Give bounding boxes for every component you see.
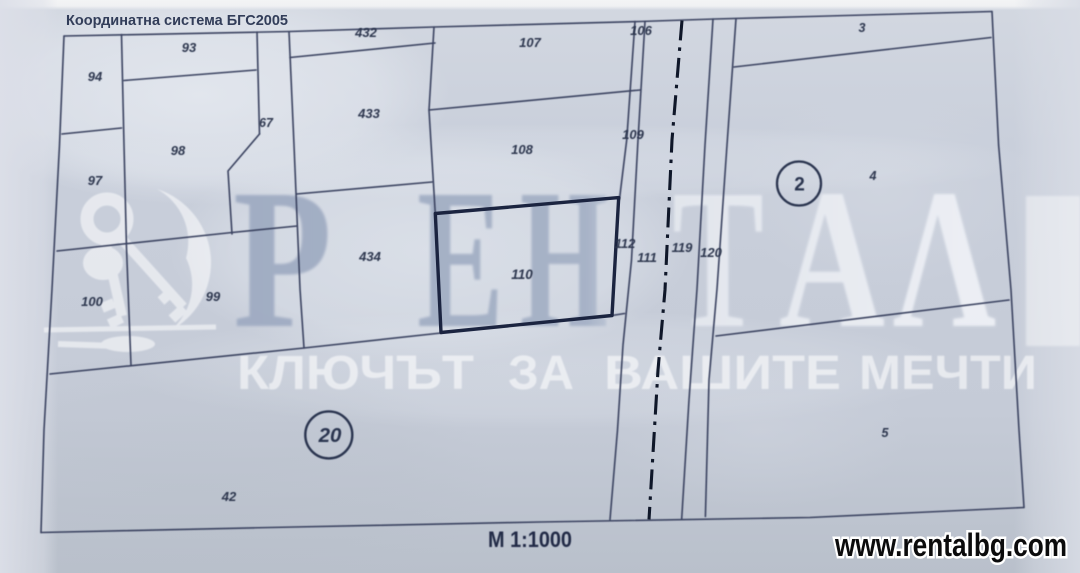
svg-text:106: 106 <box>630 23 652 38</box>
svg-text:5: 5 <box>882 426 890 440</box>
svg-text:М 1:1000: М 1:1000 <box>488 527 572 552</box>
svg-text:94: 94 <box>88 69 103 84</box>
svg-text:Н: Н <box>520 149 608 370</box>
svg-text:109: 109 <box>622 127 644 142</box>
svg-text:Р: Р <box>233 149 332 370</box>
svg-text:119: 119 <box>672 240 693 255</box>
svg-text:Координатна система БГС2005: Координатна система БГС2005 <box>66 12 288 29</box>
svg-text:110: 110 <box>511 267 533 282</box>
svg-text:МЕЧТИ: МЕЧТИ <box>859 347 1037 400</box>
svg-text:97: 97 <box>88 173 103 188</box>
svg-text:111: 111 <box>637 250 657 265</box>
svg-text:107: 107 <box>519 35 541 50</box>
svg-text:67: 67 <box>259 116 274 130</box>
svg-text:20: 20 <box>318 424 342 447</box>
svg-text:Λ: Λ <box>893 149 996 370</box>
svg-text:4: 4 <box>869 169 877 183</box>
svg-text:93: 93 <box>182 40 197 55</box>
svg-text:120: 120 <box>700 245 722 260</box>
svg-text:434: 434 <box>358 249 381 264</box>
svg-text:3: 3 <box>859 21 866 35</box>
svg-text:2: 2 <box>794 175 805 196</box>
svg-text:ВАШИТЕ: ВАШИТЕ <box>604 347 841 400</box>
svg-text:98: 98 <box>171 143 186 158</box>
svg-text:www.rentalbg.com: www.rentalbg.com <box>834 527 1067 563</box>
svg-text:433: 433 <box>357 106 380 121</box>
svg-text:112: 112 <box>615 236 636 251</box>
svg-text:108: 108 <box>511 142 533 157</box>
svg-text:КЛЮЧЪТ: КЛЮЧЪТ <box>237 347 474 400</box>
svg-text:ЗА: ЗА <box>508 347 574 400</box>
svg-text:42: 42 <box>221 489 237 504</box>
svg-text:99: 99 <box>206 289 221 304</box>
svg-text:100: 100 <box>81 294 103 309</box>
svg-text:432: 432 <box>354 25 377 40</box>
